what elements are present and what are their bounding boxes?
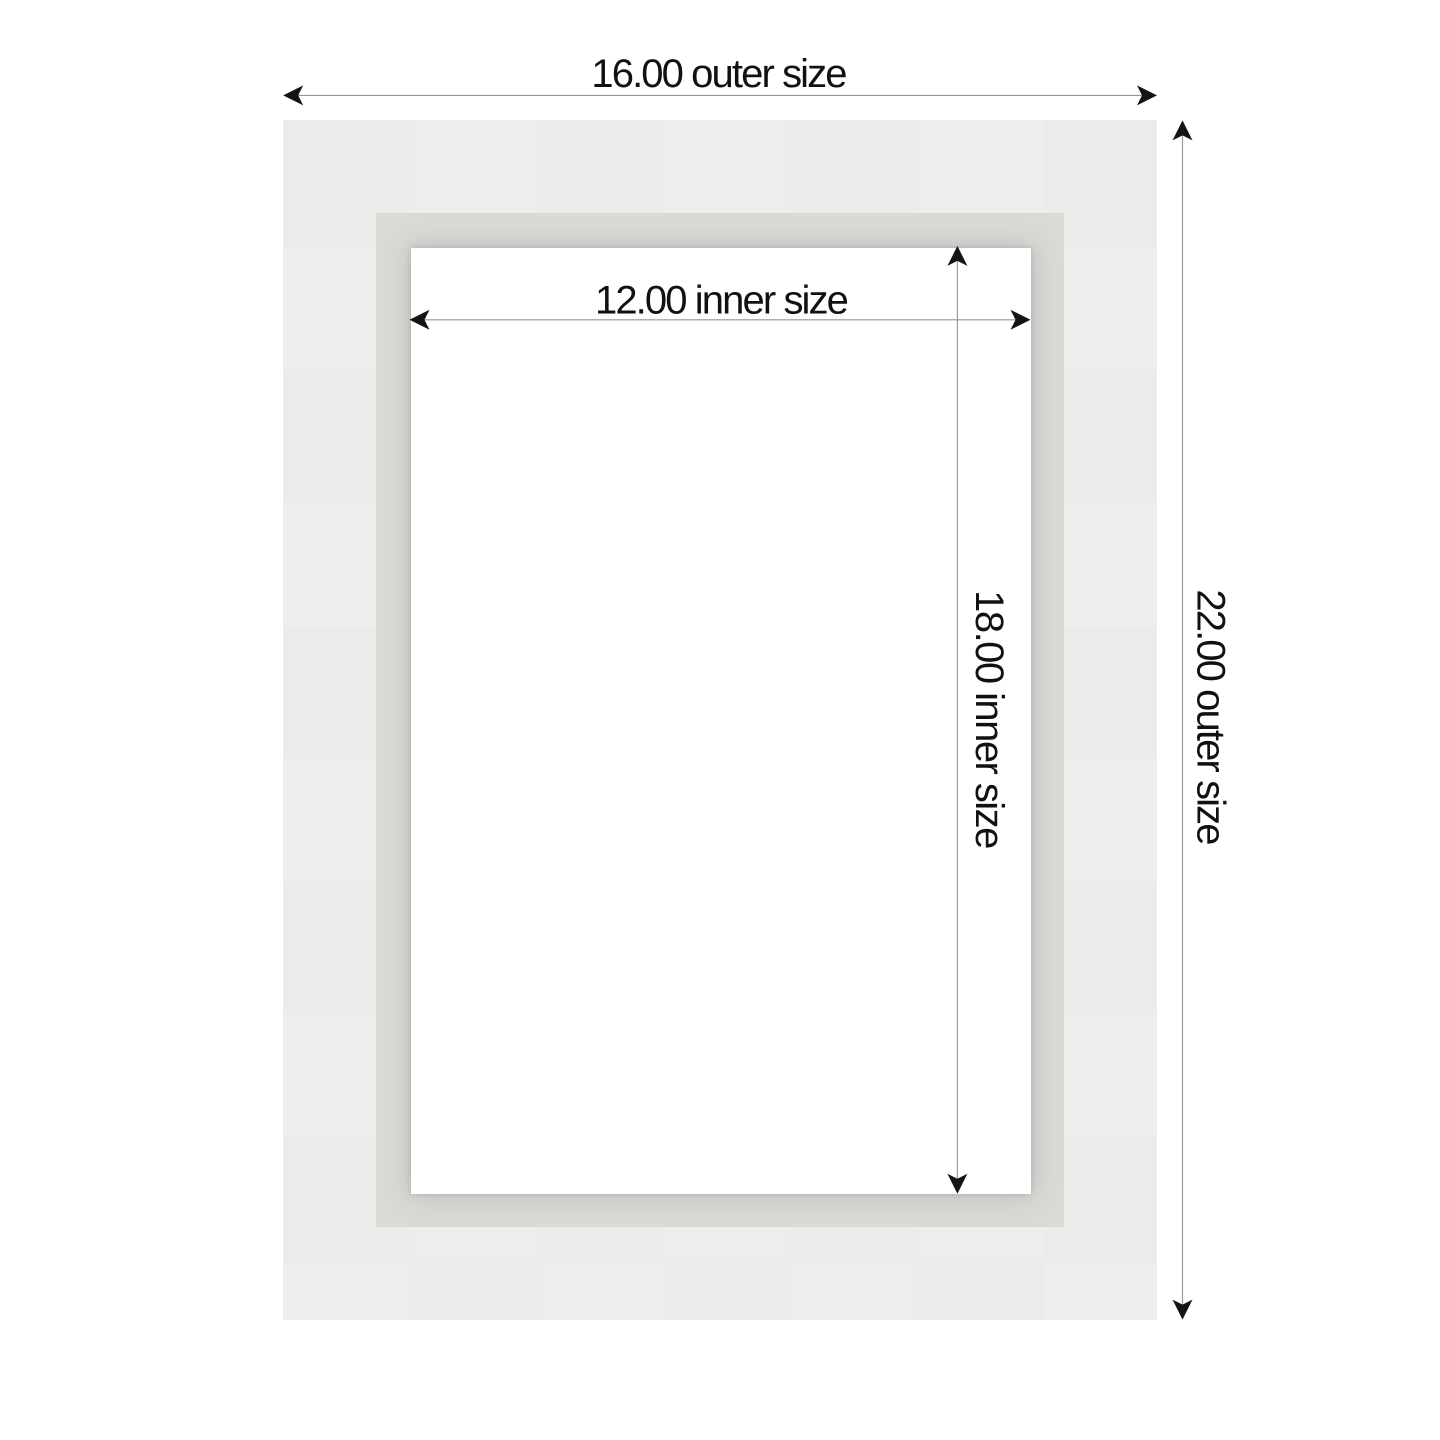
svg-text:22.00 outer size: 22.00 outer size [1188, 589, 1232, 844]
svg-text:18.00 inner size: 18.00 inner size [967, 590, 1011, 848]
svg-text:16.00 outer size: 16.00 outer size [591, 52, 846, 96]
svg-text:12.00 inner size: 12.00 inner size [595, 278, 848, 322]
